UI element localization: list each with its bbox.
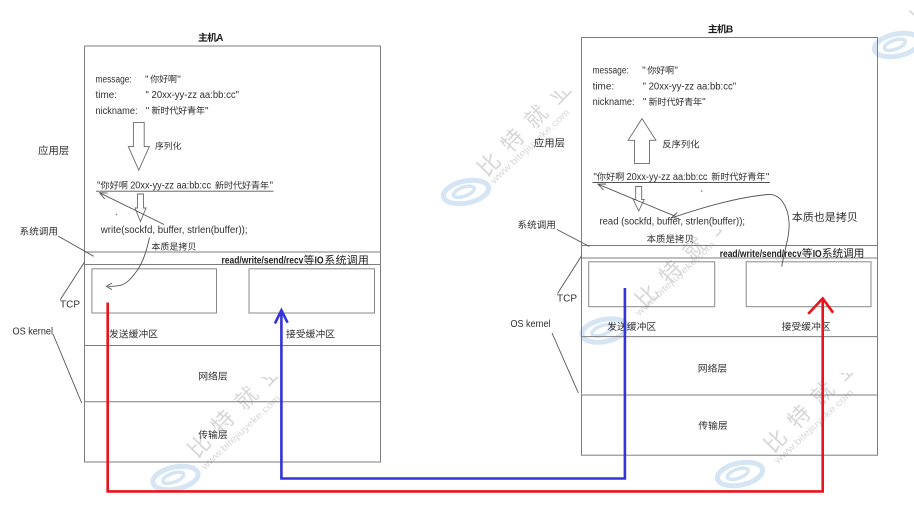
svg-text:": " xyxy=(146,106,150,117)
svg-text:IO: IO xyxy=(315,256,324,267)
svg-text:nickname:: nickname: xyxy=(96,106,138,117)
svg-text:IO: IO xyxy=(813,249,822,260)
svg-text:": " xyxy=(642,66,646,77)
svg-text:": " xyxy=(205,106,209,117)
svg-text:": " xyxy=(593,172,597,183)
svg-text:": " xyxy=(177,74,181,85)
svg-text:" 20xx-yy-zz aa:bb:cc": " 20xx-yy-zz aa:bb:cc" xyxy=(146,90,240,101)
svg-text:": " xyxy=(702,97,706,108)
svg-text:time:: time: xyxy=(96,90,118,101)
svg-text:A: A xyxy=(216,33,223,44)
svg-text:write(sockfd, buffer, strlen(b: write(sockfd, buffer, strlen(buffer)); xyxy=(100,225,248,236)
svg-text:OS kernel: OS kernel xyxy=(511,319,551,330)
svg-text:20xx-yy-zz aa:bb:cc: 20xx-yy-zz aa:bb:cc xyxy=(627,172,708,183)
svg-text:": " xyxy=(145,74,149,85)
svg-text:read (sockfd, buffer, strlen(b: read (sockfd, buffer, strlen(buffer)); xyxy=(600,217,746,228)
svg-text:TCP: TCP xyxy=(557,294,577,305)
svg-text:": " xyxy=(97,181,101,192)
svg-text:": " xyxy=(766,172,770,183)
svg-text:": " xyxy=(270,181,274,192)
svg-text:nickname:: nickname: xyxy=(593,97,635,108)
svg-text:B: B xyxy=(726,25,733,36)
svg-text:read/write/send/recv: read/write/send/recv xyxy=(222,256,304,267)
svg-text:read/write/send/recv: read/write/send/recv xyxy=(720,249,802,260)
svg-text:TCP: TCP xyxy=(60,299,80,310)
svg-text:time:: time: xyxy=(593,81,615,92)
svg-text:20xx-yy-zz aa:bb:cc: 20xx-yy-zz aa:bb:cc xyxy=(130,181,211,192)
svg-text:" 20xx-yy-zz aa:bb:cc": " 20xx-yy-zz aa:bb:cc" xyxy=(643,81,737,92)
svg-text:": " xyxy=(643,97,647,108)
svg-text:message:: message: xyxy=(593,66,629,77)
svg-text:": " xyxy=(674,66,678,77)
svg-text:message:: message: xyxy=(96,74,132,85)
svg-text:OS kernel: OS kernel xyxy=(13,326,54,337)
